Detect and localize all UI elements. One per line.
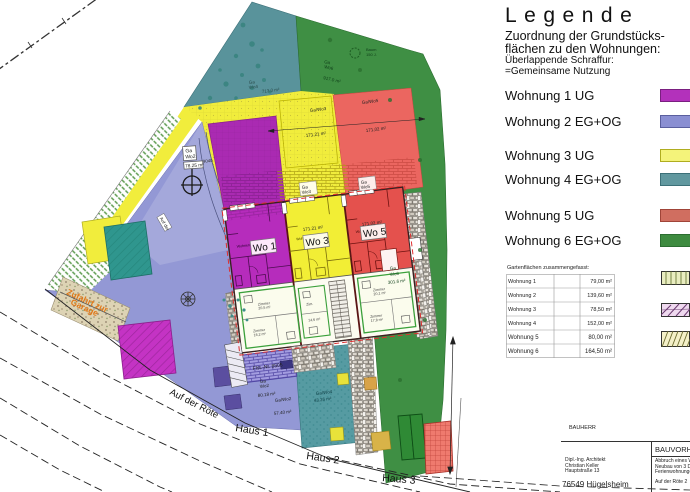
svg-text:Wo2: Wo2	[185, 154, 196, 161]
svg-text:Wohnung 5: Wohnung 5	[508, 335, 539, 341]
svg-text:Wohnung 2: Wohnung 2	[508, 293, 536, 299]
svg-text:79,00 m²: 79,00 m²	[590, 279, 612, 285]
svg-text:Wohnung 3: Wohnung 3	[508, 307, 536, 313]
svg-text:Wohnung 4: Wohnung 4	[508, 321, 536, 327]
svg-text:164,50 m²: 164,50 m²	[585, 349, 612, 355]
svg-text:Wohnung 1: Wohnung 1	[508, 279, 536, 285]
svg-text:78,50 m²: 78,50 m²	[590, 307, 612, 313]
svg-text:Zim.: Zim.	[306, 302, 313, 307]
svg-text:80,00 m²: 80,00 m²	[588, 335, 612, 341]
svg-text:139,60 m²: 139,60 m²	[587, 293, 612, 299]
svg-text:Ga: Ga	[390, 265, 397, 271]
svg-text:152,00 m²: 152,00 m²	[587, 321, 612, 327]
svg-text:Wohnung 6: Wohnung 6	[508, 349, 539, 355]
svg-text:150 J.: 150 J.	[366, 52, 377, 57]
